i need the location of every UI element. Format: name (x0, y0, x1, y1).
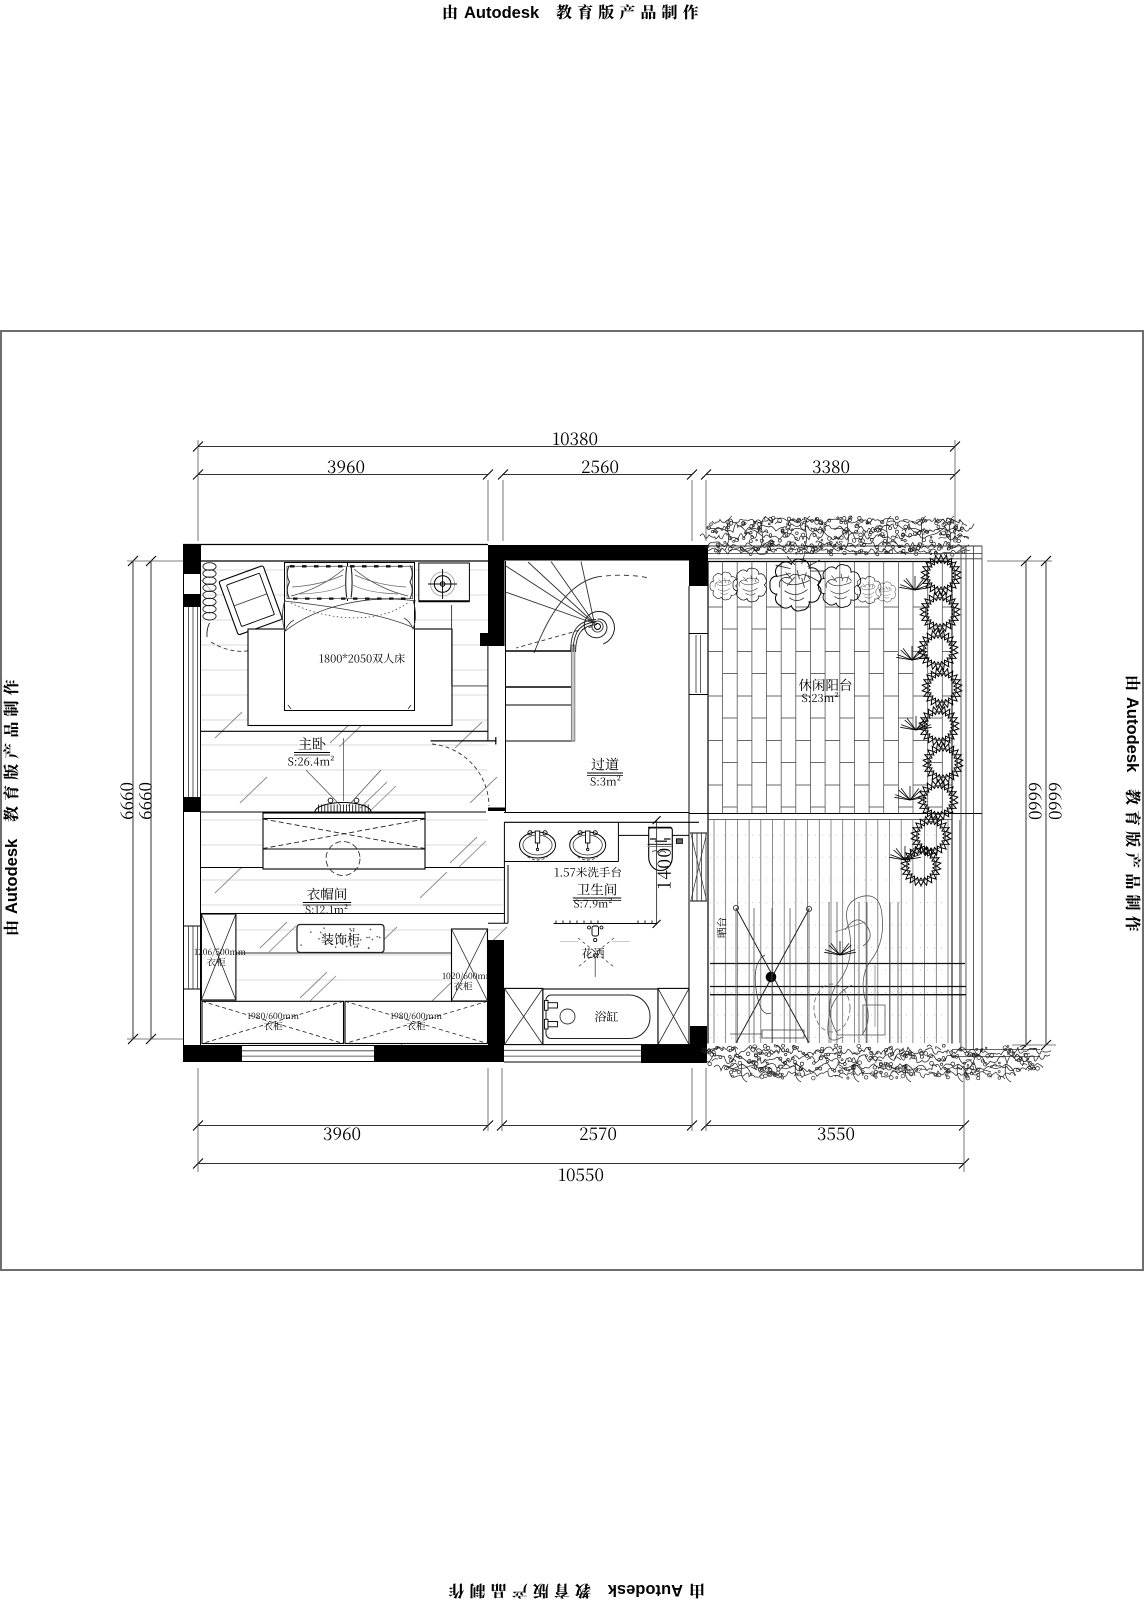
svg-text:Autodesk: Autodesk (464, 4, 540, 22)
svg-text:Autodesk: Autodesk (1123, 697, 1141, 773)
svg-text:Autodesk: Autodesk (607, 1581, 683, 1599)
svg-text:Autodesk: Autodesk (3, 838, 21, 914)
